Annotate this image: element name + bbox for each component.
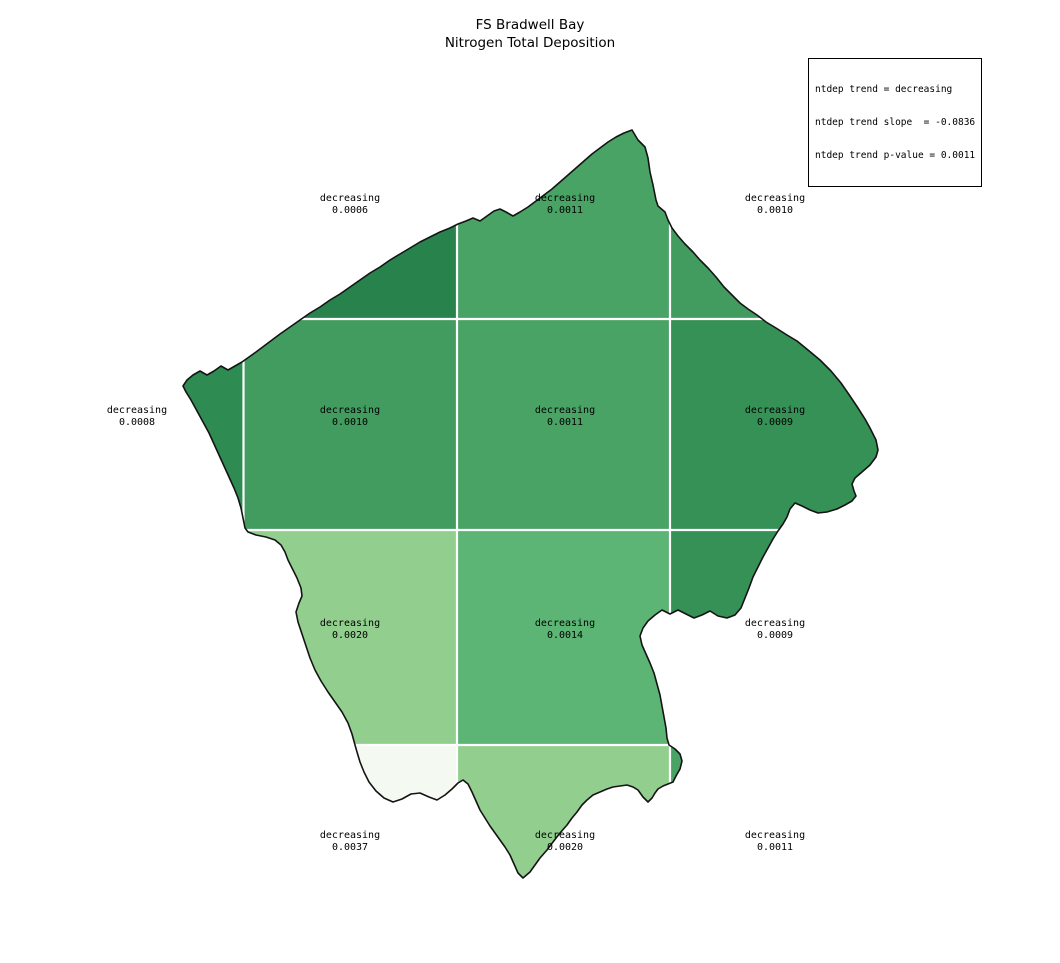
- map-cell-r0-c3: [670, 112, 895, 319]
- wilderness-map: [0, 0, 1060, 963]
- map-cell-r3-c3: [670, 745, 895, 895]
- map-cell-r2-c2: [457, 530, 670, 745]
- map-cell-r1-c2: [457, 319, 670, 530]
- map-cell-r2-c1: [244, 530, 458, 745]
- map-cell-r0-c1: [244, 112, 458, 319]
- map-cell-r1-c3: [670, 319, 895, 530]
- map-cell-r2-c3: [670, 530, 895, 745]
- map-cell-r1-c1: [244, 319, 458, 530]
- map-cells-layer: [0, 0, 1060, 963]
- figure: FS Bradwell Bay Nitrogen Total Depositio…: [0, 0, 1060, 963]
- map-cell-r3-c2: [457, 745, 670, 895]
- map-cell-r1-c0: [150, 319, 244, 530]
- map-cell-r3-c1: [244, 745, 458, 895]
